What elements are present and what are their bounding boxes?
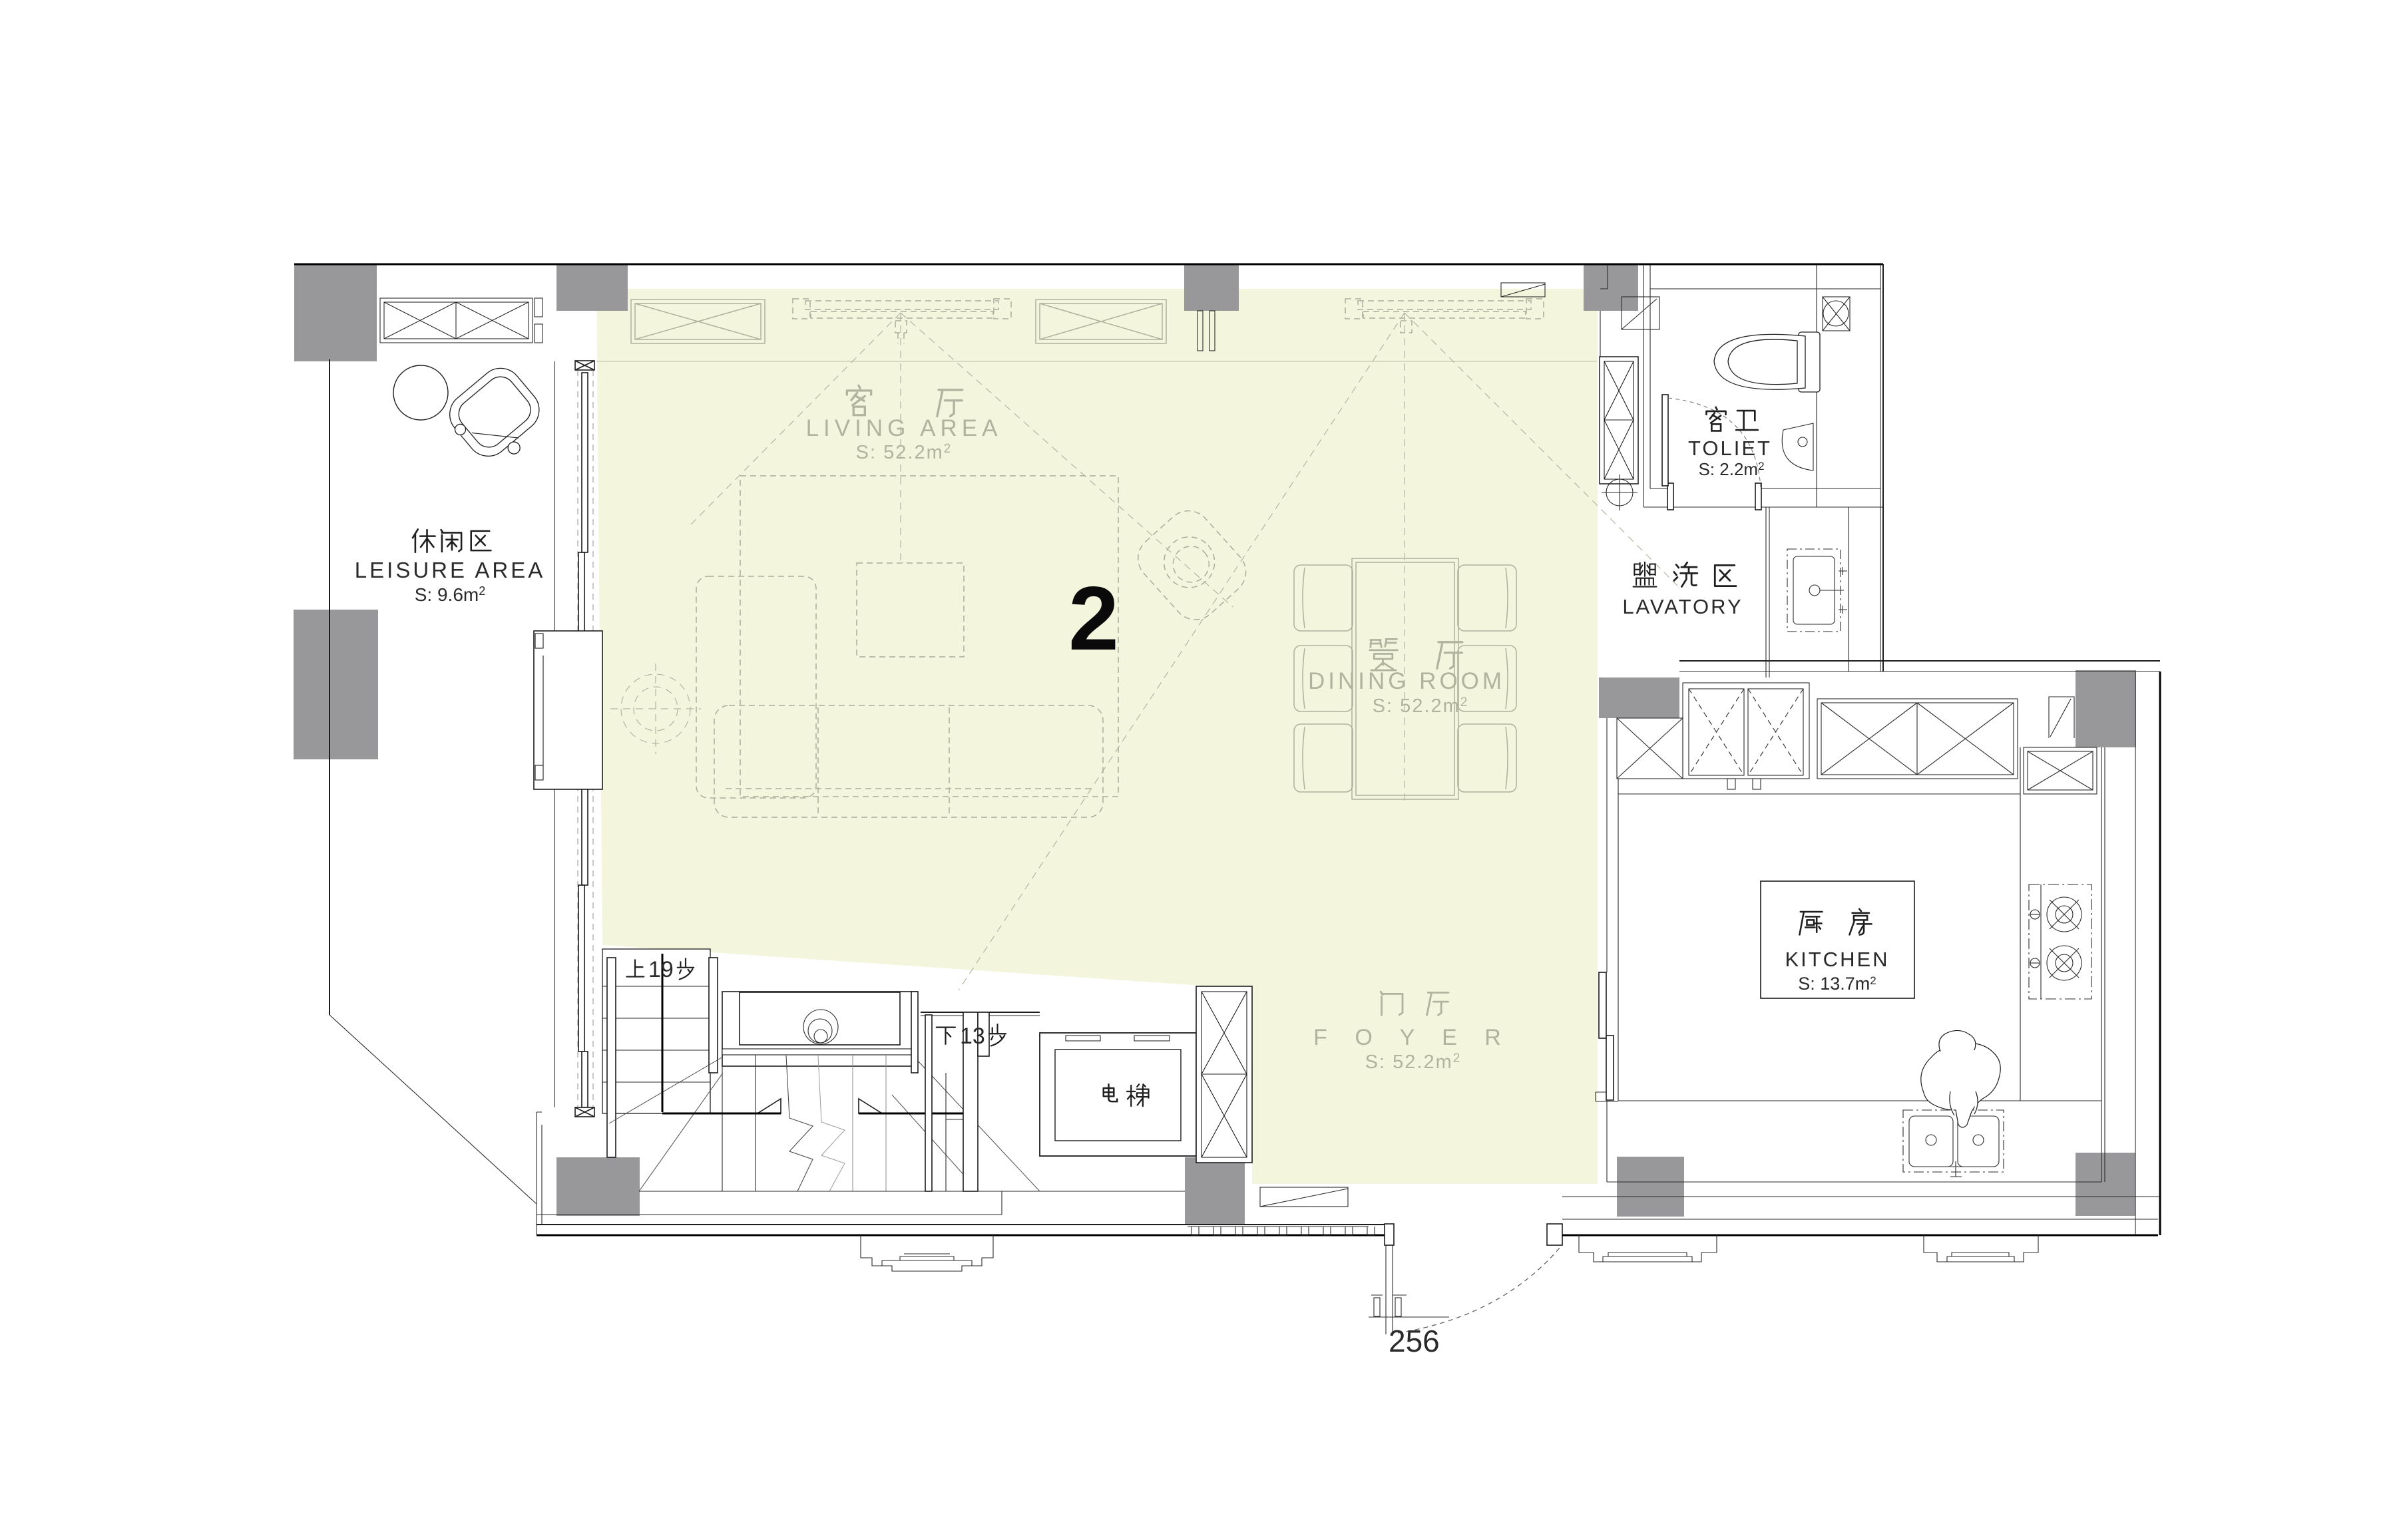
- svg-text:2: 2: [1068, 568, 1119, 669]
- svg-text:F O Y E R: F O Y E R: [1313, 1025, 1512, 1050]
- svg-text:DINING ROOM: DINING ROOM: [1308, 668, 1505, 694]
- svg-text:LEISURE AREA: LEISURE AREA: [355, 558, 545, 582]
- svg-text:KITCHEN: KITCHEN: [1785, 948, 1889, 971]
- svg-text:13: 13: [960, 1024, 985, 1049]
- svg-text:LAVATORY: LAVATORY: [1622, 595, 1743, 618]
- svg-text:S: 2.2m2: S: 2.2m2: [1698, 459, 1764, 479]
- svg-text:S: 52.2m2: S: 52.2m2: [856, 442, 953, 463]
- svg-text:S: 52.2m2: S: 52.2m2: [1373, 695, 1469, 717]
- svg-text:S: 9.6m2: S: 9.6m2: [415, 584, 486, 605]
- svg-text:256: 256: [1389, 1324, 1440, 1358]
- svg-text:S: 52.2m2: S: 52.2m2: [1365, 1052, 1462, 1073]
- svg-text:LIVING AREA: LIVING AREA: [806, 415, 1002, 441]
- svg-text:TOLIET: TOLIET: [1688, 437, 1772, 460]
- svg-text:S: 13.7m2: S: 13.7m2: [1798, 974, 1876, 994]
- svg-text:19: 19: [648, 957, 674, 982]
